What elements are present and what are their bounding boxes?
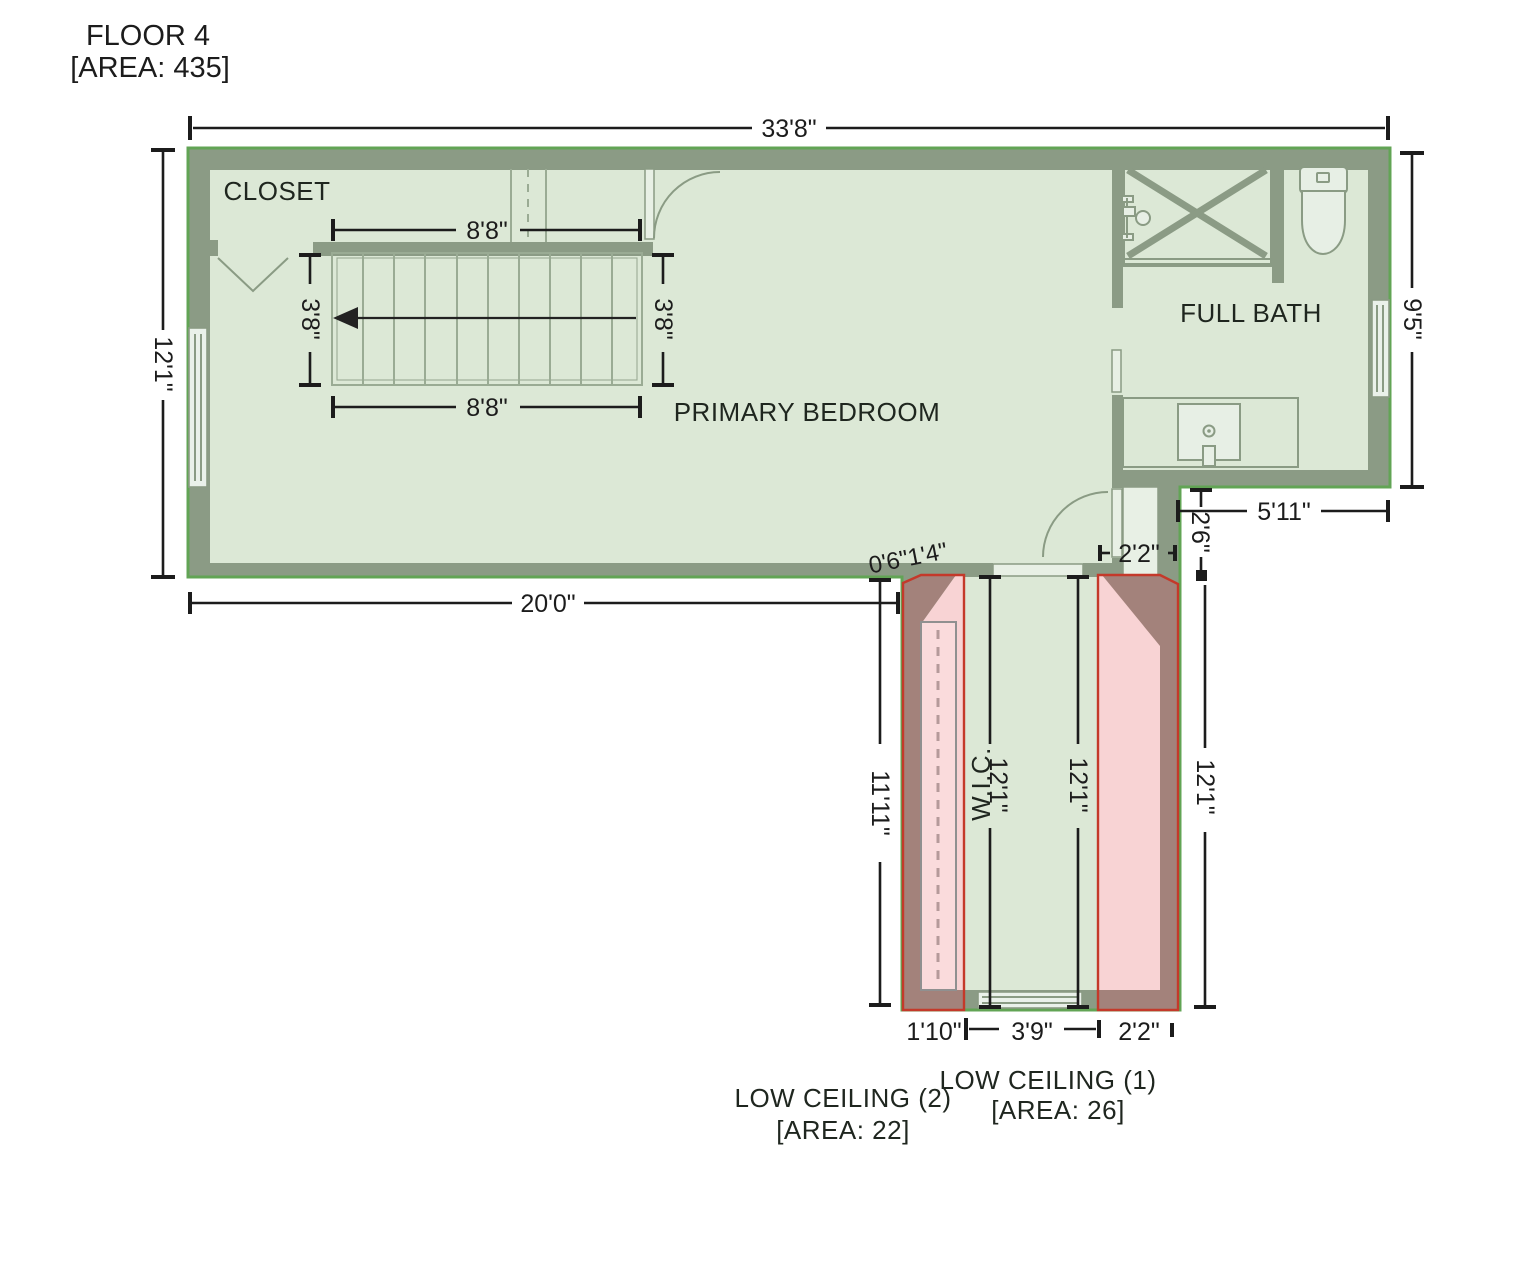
dim-label-strip2-width: 1'10" bbox=[906, 1018, 961, 1046]
window-bath-wall bbox=[1372, 300, 1389, 397]
room-label-full-bath: FULL BATH bbox=[1180, 298, 1322, 328]
dim-bedroom-width: 20'0" bbox=[190, 590, 898, 618]
dim-label-bedroom-width: 20'0" bbox=[520, 590, 575, 618]
dim-label-overall-width: 33'8" bbox=[761, 115, 816, 143]
dim-label-bath-height: 9'5" bbox=[1398, 298, 1426, 339]
dim-label-strip1-height: 12'1" bbox=[1191, 759, 1219, 814]
low-ceiling-2-region bbox=[903, 575, 964, 1010]
dim-label-strip1-width: 2'2" bbox=[1118, 1018, 1159, 1046]
room-label-closet: CLOSET bbox=[223, 176, 330, 206]
floor-plan-drawing: 33'8" 12'1" 9'5" 8'8" bbox=[0, 0, 1531, 1280]
window-left-wall bbox=[189, 328, 207, 487]
label-low-ceiling-2-area: [AREA: 22] bbox=[776, 1115, 910, 1145]
dim-label-stair-width-top: 8'8" bbox=[466, 217, 507, 245]
bath-pocket-door bbox=[1112, 350, 1121, 392]
low-ceiling-1-region bbox=[1098, 575, 1178, 1010]
page-title: FLOOR 4 bbox=[86, 20, 210, 52]
dim-label-left-height: 12'1" bbox=[149, 336, 177, 391]
dim-label-strip2-height: 11'11" bbox=[866, 770, 894, 836]
closet-rod-icon bbox=[921, 622, 956, 990]
dim-label-wic-width: 3'9" bbox=[1011, 1018, 1052, 1046]
dim-strip2-height: 11'11" bbox=[866, 580, 894, 1005]
dim-label-bath-entry-width: 2'2" bbox=[1118, 540, 1159, 568]
dim-strip1-height: 12'1" bbox=[1191, 585, 1219, 1007]
dim-label-step-width: 5'11" bbox=[1257, 498, 1311, 526]
room-label-primary-bedroom: PRIMARY BEDROOM bbox=[674, 397, 941, 427]
floor-base bbox=[188, 148, 1390, 1010]
floor-plan-page: 33'8" 12'1" 9'5" 8'8" bbox=[0, 0, 1531, 1280]
dim-label-stair-depth-right: 3'8" bbox=[649, 298, 677, 339]
page-title-area: [AREA: 435] bbox=[70, 52, 230, 84]
dim-label-step-height: 2'6" bbox=[1186, 511, 1214, 552]
dim-step-height: 2'6" bbox=[1186, 490, 1214, 581]
dim-overall-width: 33'8" bbox=[190, 115, 1388, 143]
bedroom-wic-threshold bbox=[993, 564, 1083, 576]
dim-left-height: 12'1" bbox=[149, 150, 177, 577]
room-label-wic: W.I.C. bbox=[966, 747, 996, 821]
dim-bottom-row: 1'10" 3'9" 2'2" bbox=[906, 1018, 1172, 1046]
dim-label-corridor-height: 12'1" bbox=[1064, 757, 1092, 812]
label-low-ceiling-1: LOW CEILING (1) bbox=[940, 1065, 1157, 1095]
dim-label-stair-width-bottom: 8'8" bbox=[466, 394, 507, 422]
label-low-ceiling-2: LOW CEILING (2) bbox=[735, 1083, 952, 1113]
label-low-ceiling-1-area: [AREA: 26] bbox=[991, 1095, 1125, 1125]
dim-bath-height: 9'5" bbox=[1398, 153, 1426, 487]
dim-label-stair-depth-left: 3'8" bbox=[296, 298, 324, 339]
toilet-icon bbox=[1300, 167, 1347, 254]
